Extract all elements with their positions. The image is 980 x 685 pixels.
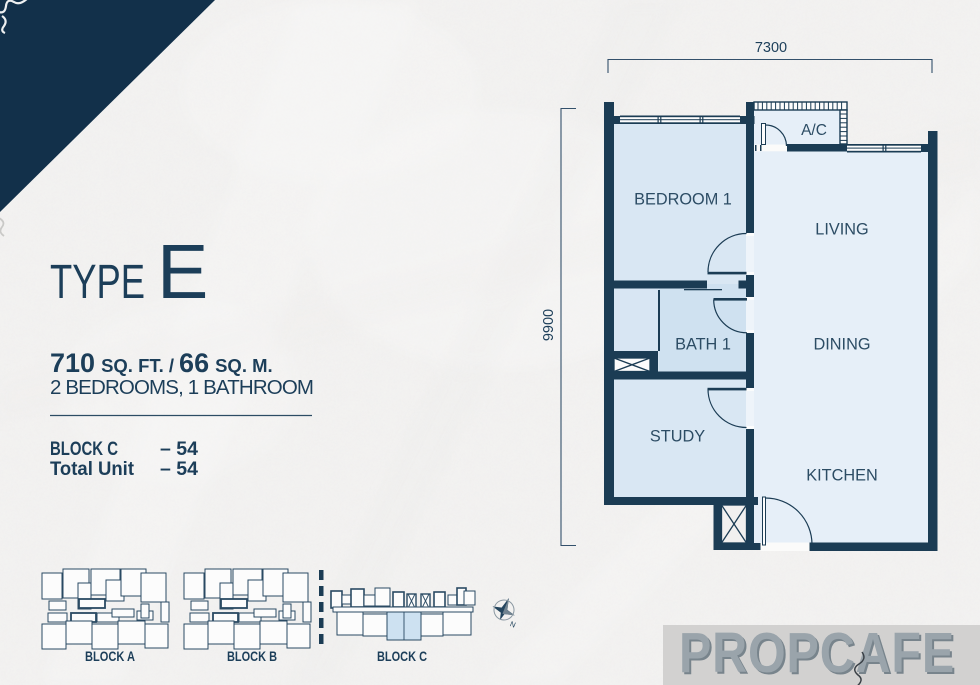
svg-text:KITCHEN: KITCHEN <box>806 467 877 485</box>
svg-text:DINING: DINING <box>814 336 871 354</box>
svg-text:E: E <box>157 229 208 315</box>
svg-text:BLOCK C: BLOCK C <box>377 649 427 664</box>
svg-text:A/C: A/C <box>801 122 827 139</box>
svg-text:– 54: – 54 <box>160 458 198 480</box>
svg-text:– 54: – 54 <box>160 438 198 460</box>
svg-text:BEDROOM 1: BEDROOM 1 <box>634 191 732 209</box>
svg-text:9900: 9900 <box>541 309 557 341</box>
svg-text:7300: 7300 <box>755 40 787 56</box>
svg-text:STUDY: STUDY <box>650 428 705 446</box>
svg-text:BATH 1: BATH 1 <box>675 336 731 354</box>
svg-text:PROPCAFE: PROPCAFE <box>679 621 955 685</box>
svg-text:2 BEDROOMS, 1 BATHROOM: 2 BEDROOMS, 1 BATHROOM <box>50 376 314 399</box>
svg-text:BLOCK B: BLOCK B <box>227 649 277 664</box>
svg-text:BLOCK A: BLOCK A <box>85 649 135 664</box>
svg-text:Total Unit: Total Unit <box>50 458 134 480</box>
svg-text:TYPE: TYPE <box>50 256 145 309</box>
svg-text:BLOCK C: BLOCK C <box>50 438 118 460</box>
svg-text:LIVING: LIVING <box>815 221 868 239</box>
